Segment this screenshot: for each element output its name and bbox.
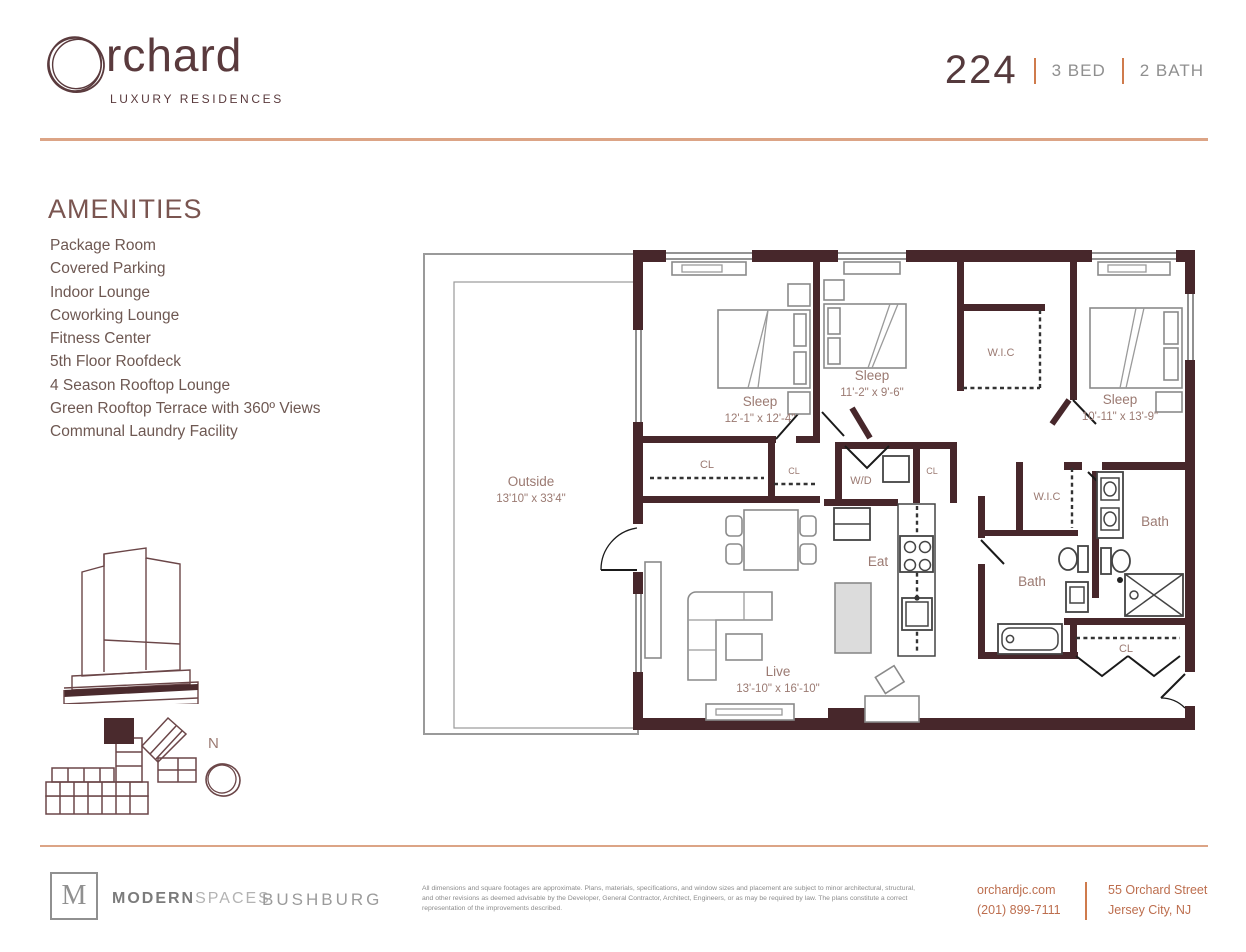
address-line1: 55 Orchard Street <box>1108 880 1207 900</box>
footer-rule <box>40 845 1208 847</box>
cl1-label: CL <box>700 459 714 471</box>
modern-spaces-wordmark: MODERNSPACES <box>112 890 271 908</box>
logo-tagline: LUXURY RESIDENCES <box>110 92 284 106</box>
live-dims: 13'-10" x 16'-10" <box>736 683 820 695</box>
live-label: Live <box>766 664 791 679</box>
amenity-item: Package Room <box>50 234 320 257</box>
cl3-label: CL <box>926 466 938 476</box>
sleep3-label: Sleep <box>1103 392 1138 407</box>
amenity-item: Communal Laundry Facility <box>50 420 320 443</box>
modern-spaces-light: SPACES <box>195 890 271 907</box>
cl2-label: CL <box>788 466 800 476</box>
header-rule <box>40 138 1208 141</box>
floorplan-flyer: rchard LUXURY RESIDENCES 224 3 BED 2 BAT… <box>0 0 1246 952</box>
north-compass-icon: N <box>203 735 243 799</box>
amenity-item: Indoor Lounge <box>50 281 320 304</box>
bath-fixtures <box>998 472 1183 654</box>
bath1-label: Bath <box>1141 514 1169 529</box>
legal-disclaimer: All dimensions and square footages are a… <box>422 884 927 915</box>
logo-wordmark: rchard <box>106 28 242 82</box>
website: orchardjc.com <box>977 880 1061 900</box>
wic1-label: W.I.C <box>988 347 1015 359</box>
eat-label: Eat <box>868 554 889 569</box>
phone: (201) 899-7111 <box>977 900 1061 920</box>
footer-divider <box>1085 882 1087 920</box>
unit-info: 224 3 BED 2 BATH <box>945 48 1204 93</box>
unit-beds: 3 BED <box>1052 61 1106 81</box>
amenity-item: Covered Parking <box>50 257 320 280</box>
amenity-item: Fitness Center <box>50 327 320 350</box>
address-block: 55 Orchard Street Jersey City, NJ <box>1108 880 1207 920</box>
bushburg-wordmark: BUSHBURG <box>262 890 382 910</box>
unit-number: 224 <box>945 48 1018 93</box>
outside-label: Outside <box>508 474 555 489</box>
amenities-list: Package Room Covered Parking Indoor Loun… <box>50 234 320 444</box>
divider <box>1034 58 1036 84</box>
building-illustration <box>42 528 214 704</box>
sleep2-dims: 11'-2" x 9'-6" <box>840 387 903 399</box>
amenity-item: 5th Floor Roofdeck <box>50 350 320 373</box>
divider <box>1122 58 1124 84</box>
contact-block: orchardjc.com (201) 899-7111 <box>977 880 1061 920</box>
modern-spaces-monogram-icon: M <box>50 872 98 920</box>
unit-location-marker <box>104 718 134 744</box>
terrace-floor <box>454 282 638 728</box>
sleep1-label: Sleep <box>743 394 778 409</box>
outside-dims: 13'10" x 33'4" <box>496 493 565 505</box>
wd-label: W/D <box>850 475 871 487</box>
room-labels: Outside 13'10" x 33'4" Sleep 12'-1" x 12… <box>496 347 1169 695</box>
floor-plan: Outside 13'10" x 33'4" Sleep 12'-1" x 12… <box>420 246 1208 750</box>
site-key-plan: N <box>38 702 250 824</box>
sleep3-dims: 10'-11" x 13'-9" <box>1082 411 1158 423</box>
orchard-logo-icon <box>44 32 108 96</box>
cl4-label: CL <box>1119 643 1133 655</box>
bath2-label: Bath <box>1018 574 1046 589</box>
sleep2-label: Sleep <box>855 368 890 383</box>
amenity-item: 4 Season Rooftop Lounge <box>50 374 320 397</box>
sleep1-dims: 12'-1" x 12'-4" <box>725 413 796 425</box>
address-line2: Jersey City, NJ <box>1108 900 1207 920</box>
compass-n-label: N <box>208 735 219 752</box>
wic2-label: W.I.C <box>1034 491 1061 503</box>
amenity-item: Green Rooftop Terrace with 360º Views <box>50 397 320 420</box>
modern-spaces-bold: MODERN <box>112 890 195 907</box>
unit-baths: 2 BATH <box>1140 61 1204 81</box>
amenity-item: Coworking Lounge <box>50 304 320 327</box>
amenities-title: AMENITIES <box>48 194 203 225</box>
